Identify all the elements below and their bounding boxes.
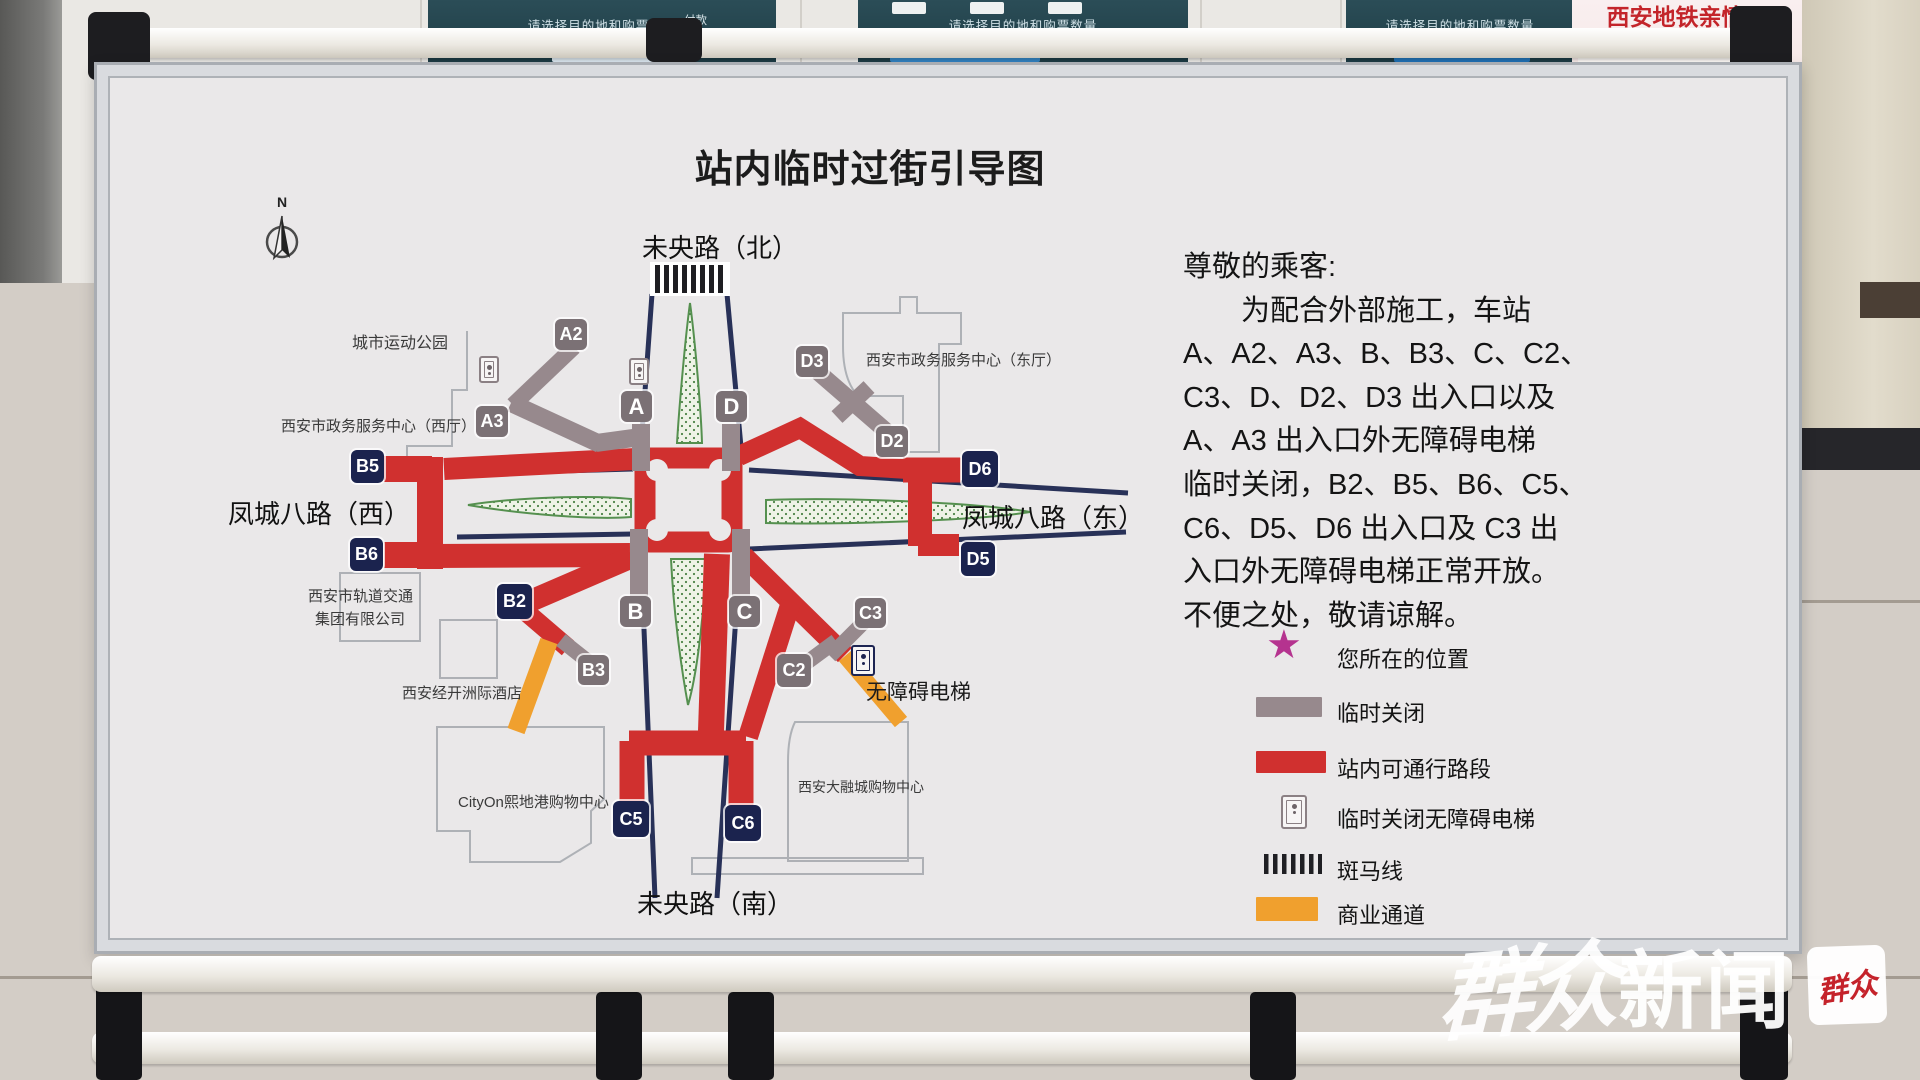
road-label-south: 未央路（南） <box>595 884 835 921</box>
machine-card-slot <box>1048 2 1082 14</box>
legend-label: 斑马线 <box>1337 854 1403 886</box>
compass-icon <box>259 212 305 270</box>
place-label-hotel: 西安经开洲际酒店 <box>402 682 522 703</box>
closed-elevator-icon <box>479 356 499 383</box>
notice-line: 为配合外部施工，车站 <box>1183 290 1603 334</box>
closed-elevator-legend-icon <box>1281 795 1307 829</box>
exit-badge-a2: A2 <box>555 319 587 350</box>
exit-badge-d5: D5 <box>961 542 995 576</box>
open-elevator-icon <box>851 645 875 676</box>
place-label-darongcheng: 西安大融城购物中心 <box>798 777 924 797</box>
floor-seam <box>1802 600 1920 603</box>
news-watermark: 群众 新闻 群众 <box>1438 916 1886 1053</box>
notice-line: A、A2、A3、B、B3、C、C2、 <box>1183 333 1603 377</box>
watermark-script-text: 群众 <box>1437 908 1613 1061</box>
closed-elevator-icon <box>629 358 649 385</box>
watermark-suffix-text: 新闻 <box>1618 923 1792 1046</box>
station-photo: 请选择目的地和购票数量 请选择目的地和购票数量 请选择目的地和购票数量 付款 西… <box>0 0 1920 1080</box>
commercial-swatch <box>1256 897 1318 921</box>
exit-badge-a: A <box>621 391 652 422</box>
road-label-north: 未央路（北） <box>600 228 840 265</box>
notice-line: 尊敬的乘客: <box>1183 246 1603 290</box>
place-label-cityon: CityOn熙地港购物中心 <box>458 791 609 812</box>
place-label-west-hall: 西安市政务服务中心（西厅） <box>281 415 476 436</box>
notice-line: 入口外无障碍电梯正常开放。 <box>1183 551 1603 595</box>
legend-label: 您所在的位置 <box>1337 642 1469 674</box>
terrazzo-floor <box>0 283 95 1080</box>
legend-label: 商业通道 <box>1337 898 1425 930</box>
exit-badge-c6: C6 <box>725 805 761 841</box>
notice-line: C3、D、D2、D3 出入口以及 <box>1183 377 1603 421</box>
stand-foot <box>1250 992 1296 1080</box>
exit-badge-b6: B6 <box>350 538 383 571</box>
you-are-here-star-icon: ★ <box>1266 622 1302 668</box>
exit-badge-b3: B3 <box>578 655 609 685</box>
door-panel <box>0 0 62 285</box>
stand-foot <box>596 992 642 1080</box>
notice-line: C6、D5、D6 出入口及 C3 出 <box>1183 508 1603 552</box>
road-label-east: 凤城八路（东） <box>962 498 1144 535</box>
exit-badge-d: D <box>716 391 747 422</box>
news-logo-badge: 群众 <box>1807 944 1888 1025</box>
stand-foot <box>728 992 774 1080</box>
elevator-label: 无障碍电梯 <box>866 676 971 706</box>
exit-badge-c3: C3 <box>855 598 886 628</box>
machine-card-slot <box>892 2 926 14</box>
notice-line: 不便之处，敬请谅解。 <box>1183 595 1603 639</box>
place-label-park: 城市运动公园 <box>352 329 448 353</box>
exit-badge-b2: B2 <box>497 584 532 619</box>
open-swatch <box>1256 751 1326 773</box>
closed-swatch <box>1256 697 1322 717</box>
exit-badge-b: B <box>620 596 651 627</box>
place-label-east-hall: 西安市政务服务中心（东厅） <box>866 349 1061 370</box>
exit-badge-d3: D3 <box>796 346 828 377</box>
exit-badge-c5: C5 <box>613 801 649 837</box>
exit-badge-d2: D2 <box>876 426 908 457</box>
legend-label: 临时关闭无障碍电梯 <box>1337 802 1535 834</box>
exit-badge-c: C <box>729 596 760 627</box>
board-title: 站内临时过街引导图 <box>620 138 1120 193</box>
exit-badge-a3: A3 <box>476 406 508 437</box>
notice-line: A、A3 出入口外无障碍电梯 <box>1183 420 1603 464</box>
pillar-vent <box>1860 282 1920 318</box>
machine-card-slot <box>970 2 1004 14</box>
legend-label: 临时关闭 <box>1337 696 1425 728</box>
pillar <box>1802 0 1920 470</box>
stand-foot <box>96 986 142 1080</box>
legend-label: 站内可通行路段 <box>1337 752 1491 784</box>
exit-badge-b5: B5 <box>351 450 384 483</box>
passenger-notice: 尊敬的乘客: 为配合外部施工，车站 A、A2、A3、B、B3、C、C2、 C3、… <box>1183 246 1603 638</box>
exit-badge-c2: C2 <box>777 654 811 687</box>
stand-top-tube <box>100 28 1748 58</box>
place-label-metro-group-2: 集团有限公司 <box>308 608 412 629</box>
notice-line: 临时关闭，B2、B5、B6、C5、 <box>1183 464 1603 508</box>
pillar-base <box>1802 428 1920 474</box>
place-label-metro-group-1: 西安市轨道交通 <box>308 585 412 606</box>
road-label-west: 凤城八路（西） <box>228 494 410 531</box>
exit-badge-d6: D6 <box>962 451 998 487</box>
zebra-swatch <box>1264 854 1322 874</box>
compass-north-label: N <box>258 194 306 210</box>
